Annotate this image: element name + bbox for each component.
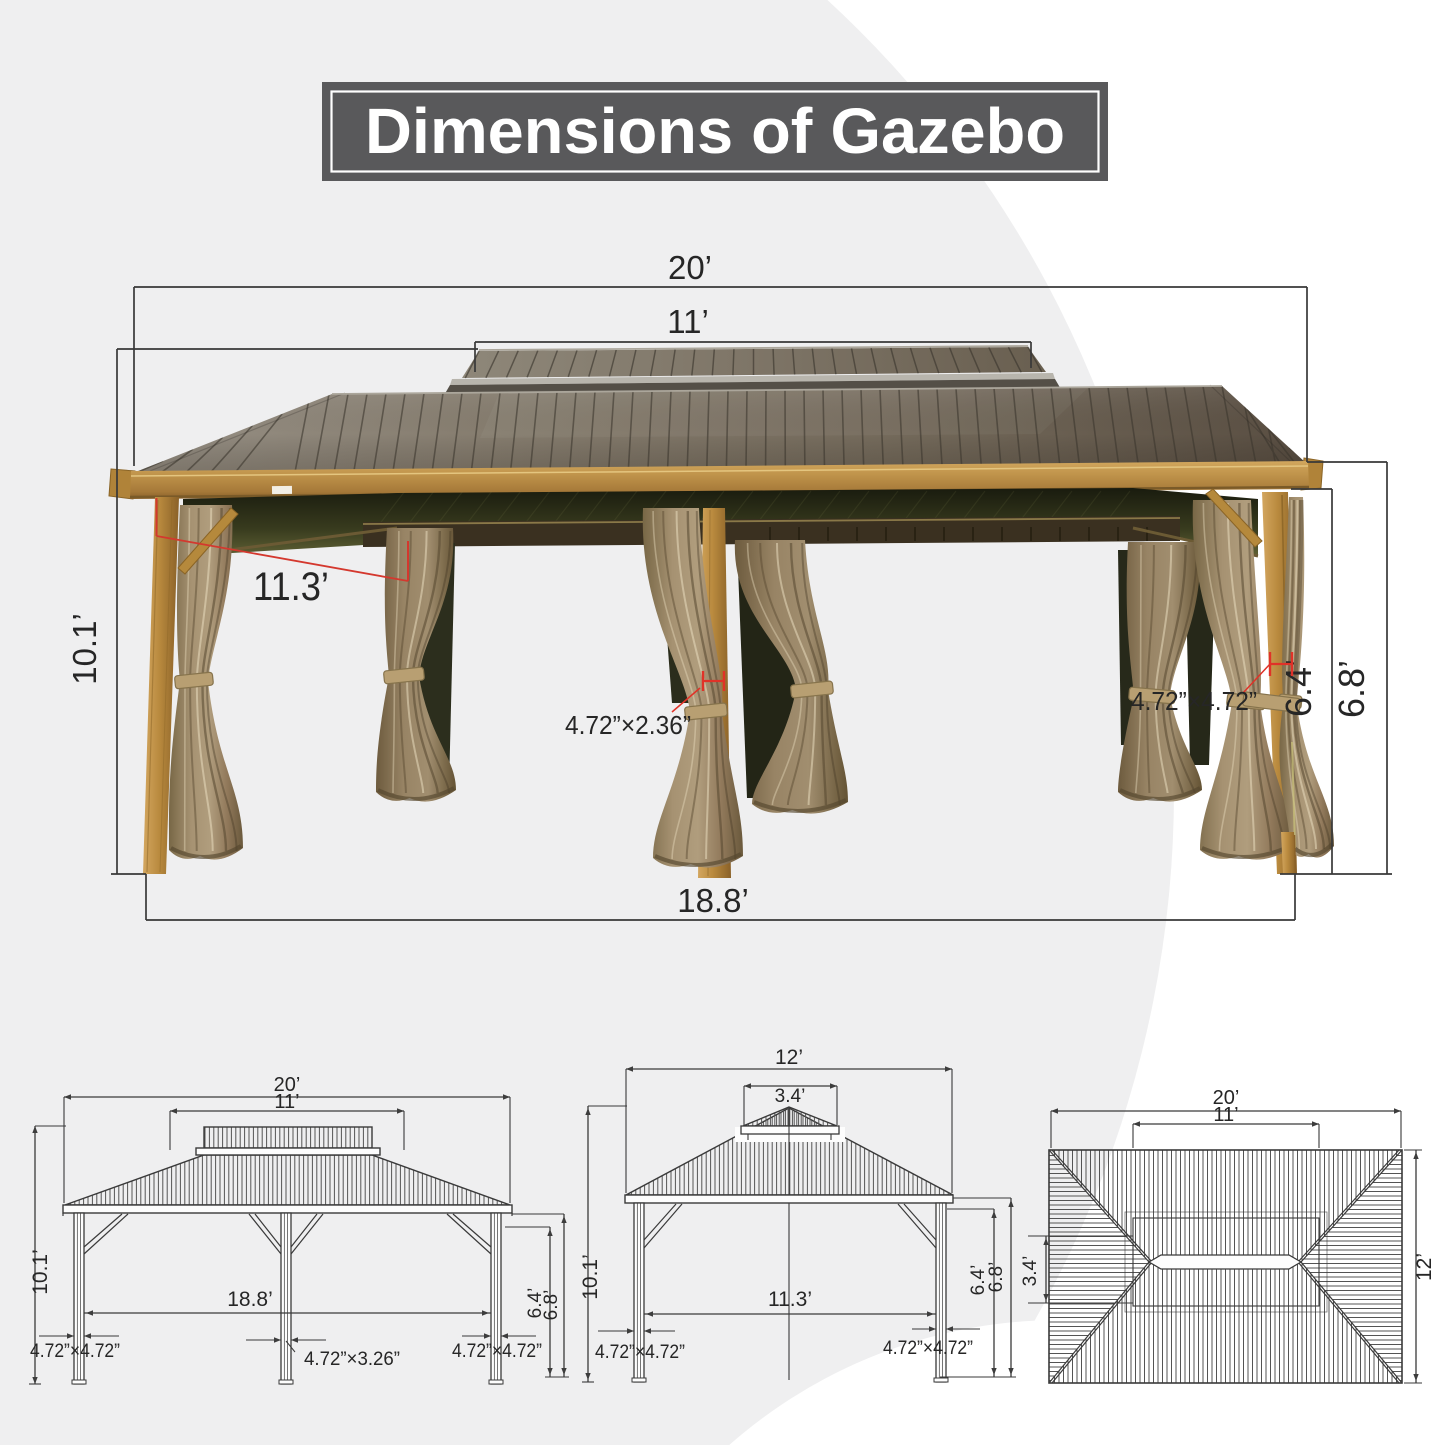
- svg-text:4.72”×4.72”: 4.72”×4.72”: [883, 1338, 973, 1359]
- svg-text:18.8’: 18.8’: [677, 882, 749, 919]
- svg-text:3.4’: 3.4’: [1020, 1256, 1041, 1287]
- svg-text:11’: 11’: [274, 1091, 299, 1113]
- svg-text:6.8’: 6.8’: [986, 1262, 1007, 1293]
- svg-text:10.1’: 10.1’: [66, 613, 103, 685]
- svg-text:18.8’: 18.8’: [227, 1288, 273, 1311]
- svg-text:Dimensions of Gazebo: Dimensions of Gazebo: [365, 95, 1065, 167]
- svg-text:20’: 20’: [668, 249, 712, 286]
- svg-text:4.72”×2.36”: 4.72”×2.36”: [565, 710, 691, 740]
- svg-text:3.4’: 3.4’: [775, 1086, 806, 1107]
- svg-text:4.72”×3.26”: 4.72”×3.26”: [304, 1349, 400, 1370]
- svg-text:4.72”×4.72”: 4.72”×4.72”: [30, 1341, 120, 1362]
- svg-text:11’: 11’: [667, 303, 709, 340]
- svg-text:10.1’: 10.1’: [29, 1249, 52, 1295]
- svg-text:11.3’: 11.3’: [253, 565, 329, 609]
- svg-text:4.72”×4.72”: 4.72”×4.72”: [1131, 686, 1257, 716]
- svg-text:4.72”×4.72”: 4.72”×4.72”: [452, 1341, 542, 1362]
- svg-text:6.8’: 6.8’: [541, 1290, 562, 1321]
- svg-text:12’: 12’: [1413, 1253, 1436, 1281]
- svg-text:6.8’: 6.8’: [1331, 660, 1372, 718]
- svg-text:4.72”×4.72”: 4.72”×4.72”: [595, 1342, 685, 1363]
- svg-text:11.3’: 11.3’: [768, 1288, 812, 1311]
- svg-text:11’: 11’: [1213, 1104, 1238, 1126]
- svg-text:6.4’: 6.4’: [1278, 659, 1319, 717]
- svg-text:12’: 12’: [775, 1046, 803, 1069]
- svg-text:10.1’: 10.1’: [579, 1254, 602, 1300]
